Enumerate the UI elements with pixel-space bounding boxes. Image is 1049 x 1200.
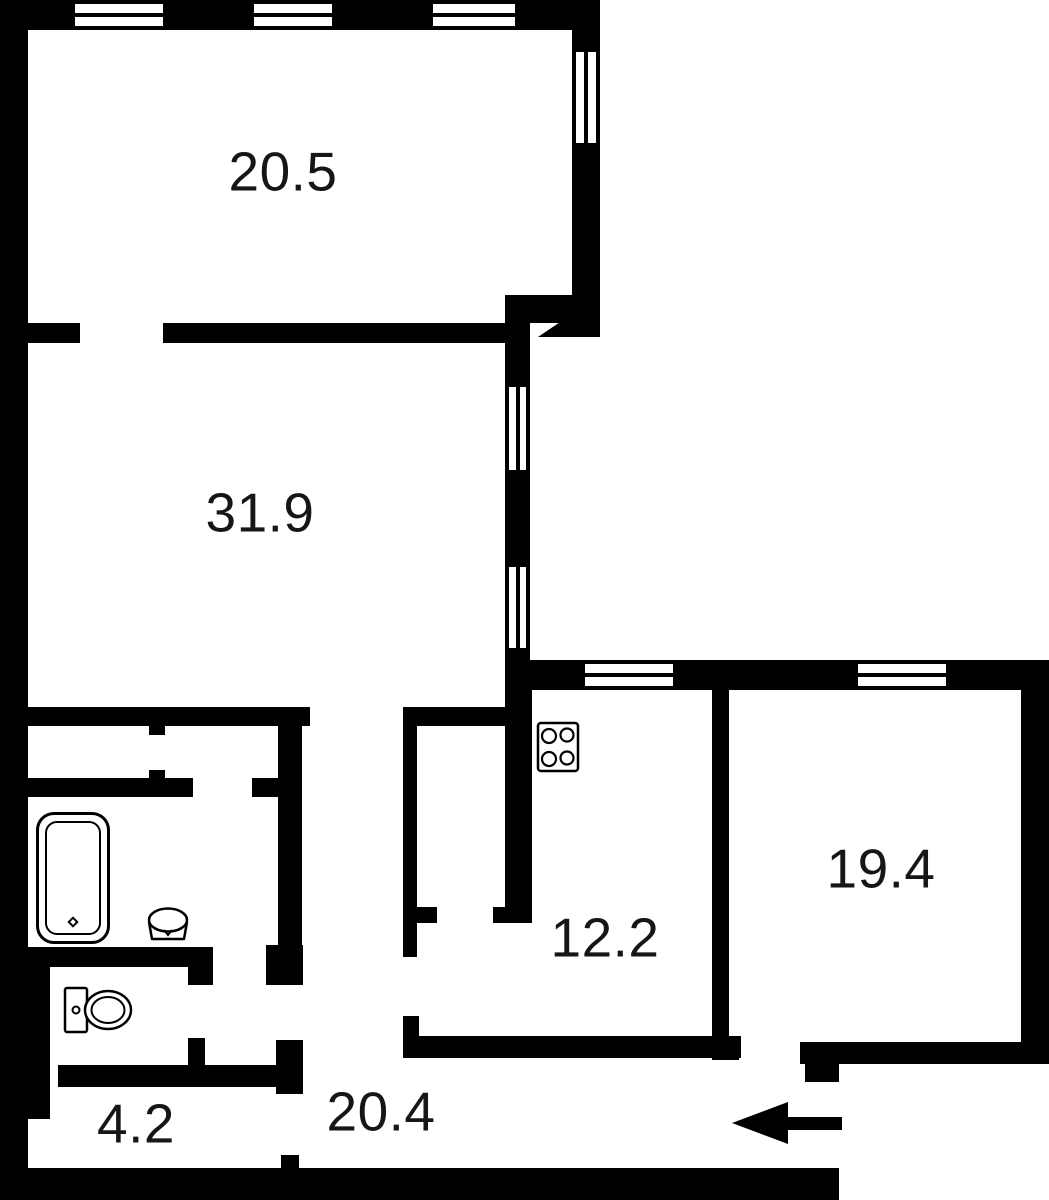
wall-divider-top-b xyxy=(163,323,505,343)
wall-hall-nook-tab xyxy=(417,907,437,923)
room-label-room-right: 19.4 xyxy=(826,842,935,897)
wall-kitchen-room-divider-foot xyxy=(712,1046,739,1060)
window-top-2 xyxy=(254,0,332,30)
wall-left-outer-thick xyxy=(0,947,50,1119)
room-label-kitchen: 12.2 xyxy=(550,911,659,966)
window-top-1 xyxy=(75,0,163,30)
window-living-2 xyxy=(505,567,530,648)
wall-entrance-jamb-upper xyxy=(805,1042,839,1082)
floor-plan: 20.5 31.9 12.2 19.4 4.2 20.4 xyxy=(0,0,1049,1200)
wall-wc-door-jamb xyxy=(281,1155,299,1169)
wall-kitchen-room-divider xyxy=(712,690,729,1046)
window-room-right xyxy=(858,660,946,690)
wall-hall-nook-west xyxy=(403,726,417,957)
room-label-living: 31.9 xyxy=(205,486,314,541)
wall-bath-south-tab xyxy=(188,967,213,985)
wall-wc-inner-stub xyxy=(188,1038,205,1066)
entrance-arrow-icon xyxy=(732,1102,788,1144)
wall-wc-south xyxy=(58,1065,281,1087)
wall-bath-east xyxy=(278,707,302,980)
entrance-arrow-shaft xyxy=(788,1117,842,1130)
wall-bath-north-a xyxy=(28,778,193,797)
wall-bath-south xyxy=(50,947,213,967)
wall-bottom-outer xyxy=(0,1168,839,1200)
room-label-hallway: 20.4 xyxy=(326,1085,435,1140)
window-kitchen xyxy=(585,660,673,690)
wall-hall-north-b xyxy=(403,707,505,726)
wall-kitchen-west-tab xyxy=(493,907,505,923)
window-top-3 xyxy=(433,0,515,30)
wall-bath-east-block xyxy=(266,945,303,985)
wall-kitchen-west xyxy=(505,690,532,923)
window-living-1 xyxy=(505,387,530,470)
wall-kitchen-south xyxy=(403,1036,741,1058)
wall-divider-top-a xyxy=(28,323,80,343)
wall-hall-corner xyxy=(403,1016,419,1038)
wall-hall-north-a xyxy=(28,707,310,726)
wall-right-upper xyxy=(572,0,600,325)
toilet-icon xyxy=(62,984,136,1036)
stove-icon xyxy=(536,721,580,773)
window-right-upper xyxy=(572,52,600,143)
washbasin-icon xyxy=(144,904,192,946)
wall-closet-jamb-top xyxy=(149,726,165,735)
bathtub-icon xyxy=(36,812,110,944)
room-label-top-left: 20.5 xyxy=(228,145,337,200)
wall-bath-north-b xyxy=(252,778,278,797)
wall-right-lower xyxy=(1021,690,1049,1064)
room-label-wc: 4.2 xyxy=(97,1097,175,1152)
